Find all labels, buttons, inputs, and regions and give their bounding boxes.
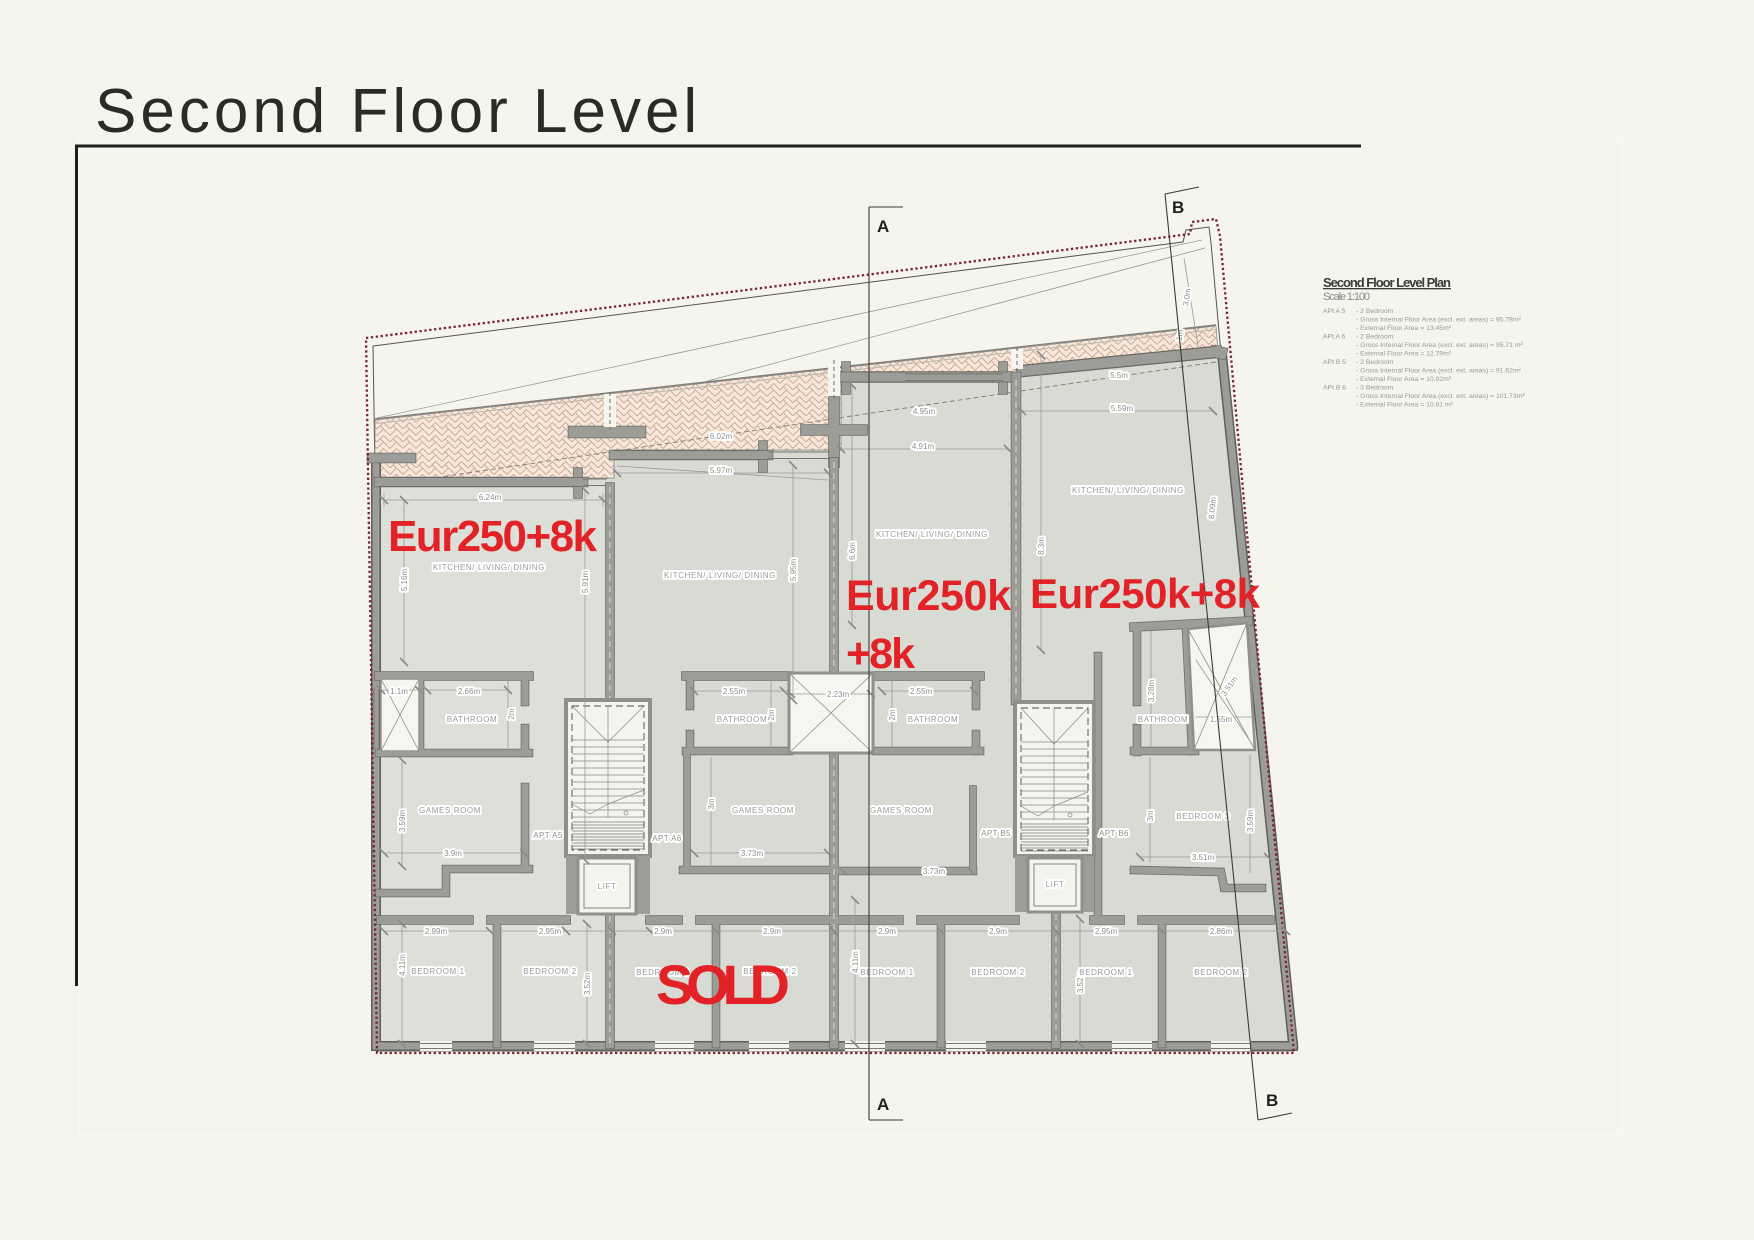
svg-text:4.11m: 4.11m bbox=[851, 951, 860, 973]
svg-text:Eur250k: Eur250k bbox=[846, 572, 1011, 620]
svg-text:2.9m: 2.9m bbox=[878, 927, 896, 936]
svg-text:KITCHEN/ LIVING/ DINING: KITCHEN/ LIVING/ DINING bbox=[1072, 486, 1184, 495]
svg-text:KITCHEN/ LIVING/ DINING: KITCHEN/ LIVING/ DINING bbox=[664, 571, 776, 580]
svg-text:APt B 6: APt B 6 bbox=[1323, 385, 1346, 392]
svg-text:BEDROOM 1: BEDROOM 1 bbox=[860, 968, 913, 977]
svg-text:BEDROOM 2: BEDROOM 2 bbox=[1194, 968, 1247, 977]
svg-text:- 3 Bedroom: - 3 Bedroom bbox=[1356, 385, 1394, 392]
svg-text:APT B5: APT B5 bbox=[981, 829, 1011, 838]
svg-text:GAMES ROOM: GAMES ROOM bbox=[870, 806, 932, 815]
svg-text:2.95m: 2.95m bbox=[1095, 927, 1118, 936]
svg-text:BATHROOM: BATHROOM bbox=[1138, 715, 1188, 724]
svg-text:Eur250k+8k: Eur250k+8k bbox=[1030, 570, 1261, 617]
svg-text:GAMES ROOM: GAMES ROOM bbox=[732, 806, 794, 815]
svg-text:LIFT: LIFT bbox=[598, 882, 617, 891]
svg-text:- External Floor Area = 10.92m: - External Floor Area = 10.92m² bbox=[1356, 376, 1452, 383]
svg-text:2.9m: 2.9m bbox=[654, 927, 672, 936]
svg-text:2.95m: 2.95m bbox=[539, 927, 562, 936]
svg-text:5.91m: 5.91m bbox=[581, 571, 590, 594]
svg-text:Eur250+8k: Eur250+8k bbox=[388, 512, 598, 561]
svg-text:SOLD: SOLD bbox=[656, 953, 790, 1016]
svg-text:3.73m: 3.73m bbox=[741, 849, 764, 858]
svg-text:3.28m: 3.28m bbox=[1147, 680, 1156, 703]
svg-text:A: A bbox=[877, 1095, 889, 1114]
svg-text:2m: 2m bbox=[507, 708, 516, 719]
svg-text:3.73m: 3.73m bbox=[923, 867, 946, 876]
svg-text:2.9m: 2.9m bbox=[989, 927, 1007, 936]
svg-text:2.23m: 2.23m bbox=[827, 690, 850, 699]
svg-text:+8k: +8k bbox=[846, 630, 915, 678]
svg-text:Second Floor Level: Second Floor Level bbox=[95, 77, 701, 146]
svg-text:3m: 3m bbox=[1146, 810, 1155, 821]
svg-text:BEDROOM 1: BEDROOM 1 bbox=[1079, 968, 1132, 977]
svg-text:- External Floor Area = 13.45m: - External Floor Area = 13.45m² bbox=[1356, 325, 1452, 332]
svg-text:2m: 2m bbox=[888, 709, 897, 720]
svg-text:KITCHEN/ LIVING/ DINING: KITCHEN/ LIVING/ DINING bbox=[876, 530, 988, 539]
svg-text:2.86m: 2.86m bbox=[1210, 927, 1233, 936]
svg-text:BEDROOM 1: BEDROOM 1 bbox=[411, 967, 464, 976]
svg-text:2.99m: 2.99m bbox=[425, 927, 448, 936]
svg-text:KITCHEN/ LIVING/ DINING: KITCHEN/ LIVING/ DINING bbox=[433, 563, 545, 572]
svg-text:2.9m: 2.9m bbox=[763, 927, 781, 936]
svg-text:A: A bbox=[877, 217, 889, 236]
svg-text:B: B bbox=[1172, 198, 1184, 217]
svg-text:- Gross Internal Floor Area (e: - Gross Internal Floor Area (excl. ext. … bbox=[1356, 317, 1522, 324]
svg-text:8.3m: 8.3m bbox=[1037, 537, 1046, 555]
svg-text:- External Floor Area = 12.79m: - External Floor Area = 12.79m² bbox=[1356, 351, 1452, 358]
svg-text:- Gross Internal Floor Area (e: - Gross Internal Floor Area (excl. ext. … bbox=[1356, 342, 1524, 349]
svg-text:APt B 5: APt B 5 bbox=[1323, 359, 1346, 366]
svg-text:4.91m: 4.91m bbox=[912, 442, 935, 451]
svg-text:2.55m: 2.55m bbox=[723, 687, 746, 696]
svg-text:1.1m: 1.1m bbox=[390, 687, 408, 696]
svg-text:6.02m: 6.02m bbox=[710, 432, 733, 441]
svg-text:5.16m: 5.16m bbox=[400, 569, 409, 592]
svg-text:3m: 3m bbox=[707, 798, 716, 809]
svg-text:2m: 2m bbox=[767, 709, 776, 720]
svg-text:5.5m: 5.5m bbox=[1110, 371, 1128, 380]
svg-text:5.59m: 5.59m bbox=[1111, 404, 1134, 413]
svg-text:3.59m: 3.59m bbox=[398, 810, 407, 833]
svg-text:LIFT: LIFT bbox=[1046, 880, 1065, 889]
svg-text:APt A 5: APt A 5 bbox=[1323, 308, 1346, 315]
svg-text:APT A5: APT A5 bbox=[533, 831, 563, 840]
svg-text:B: B bbox=[1266, 1091, 1278, 1110]
svg-text:APt A 6: APt A 6 bbox=[1323, 334, 1346, 341]
svg-text:- Gross Internal Floor Area (e: - Gross Internal Floor Area (excl. ext. … bbox=[1356, 368, 1522, 375]
svg-text:2.66m: 2.66m bbox=[458, 687, 481, 696]
svg-text:- 2 Bedroom: - 2 Bedroom bbox=[1356, 334, 1394, 341]
svg-text:1.55m: 1.55m bbox=[1210, 715, 1233, 724]
svg-text:- External Floor Area = 10.81: - External Floor Area = 10.81 m² bbox=[1356, 402, 1454, 409]
svg-text:- Gross Internal Floor Area (e: - Gross Internal Floor Area (excl. ext. … bbox=[1356, 393, 1525, 400]
svg-text:3.52m: 3.52m bbox=[583, 973, 592, 996]
svg-text:4.11m: 4.11m bbox=[398, 954, 407, 976]
svg-text:APT A6: APT A6 bbox=[652, 834, 682, 843]
svg-text:BATHROOM: BATHROOM bbox=[447, 715, 497, 724]
svg-text:3.9m: 3.9m bbox=[444, 849, 462, 858]
svg-text:6.6m: 6.6m bbox=[848, 542, 857, 560]
svg-text:5.97m: 5.97m bbox=[710, 466, 733, 475]
svg-text:BEDROOM 2: BEDROOM 2 bbox=[971, 968, 1024, 977]
svg-text:GAMES ROOM: GAMES ROOM bbox=[419, 806, 481, 815]
svg-text:4.95m: 4.95m bbox=[913, 407, 936, 416]
svg-text:3.51m: 3.51m bbox=[1192, 853, 1215, 862]
svg-text:3.59m: 3.59m bbox=[1246, 810, 1255, 833]
svg-text:- 2 Bedroom: - 2 Bedroom bbox=[1356, 359, 1394, 366]
svg-text:Scale 1:100: Scale 1:100 bbox=[1323, 291, 1370, 303]
svg-text:Second Floor Level Plan: Second Floor Level Plan bbox=[1323, 275, 1451, 290]
svg-text:BATHROOM: BATHROOM bbox=[908, 715, 958, 724]
svg-text:BEDROOM 2: BEDROOM 2 bbox=[523, 967, 576, 976]
svg-text:6.24m: 6.24m bbox=[479, 493, 502, 502]
svg-text:5.95m: 5.95m bbox=[789, 559, 798, 582]
svg-text:BEDROOM 3: BEDROOM 3 bbox=[1176, 812, 1229, 821]
svg-text:BATHROOM: BATHROOM bbox=[717, 715, 767, 724]
svg-text:2.55m: 2.55m bbox=[910, 687, 933, 696]
svg-text:APT B6: APT B6 bbox=[1099, 829, 1129, 838]
svg-text:- 2 Bedroom: - 2 Bedroom bbox=[1356, 308, 1394, 315]
